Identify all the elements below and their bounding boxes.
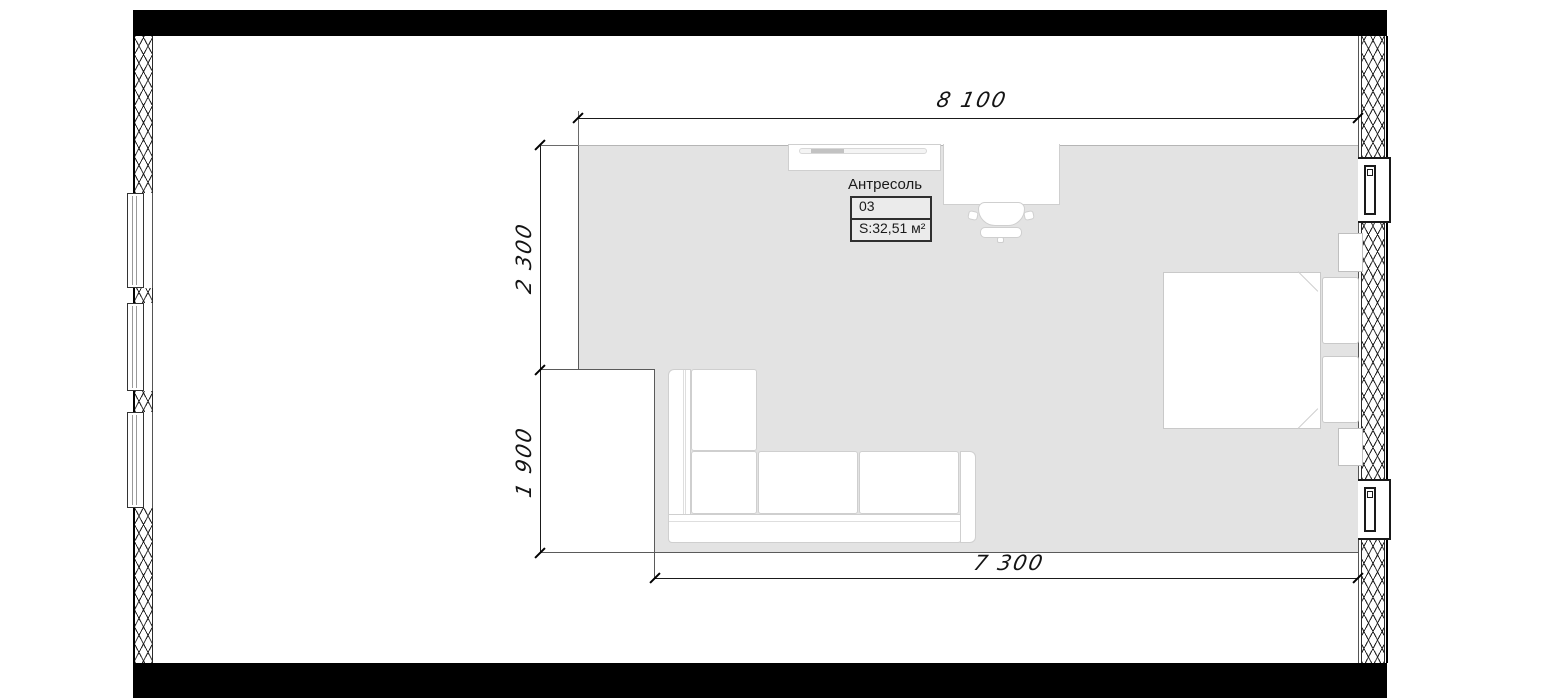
left-wall-pier (133, 391, 153, 412)
dimension-extension (540, 145, 578, 146)
room-number-cell: 03 (852, 198, 930, 220)
sofa-front-band (668, 514, 962, 543)
sofa-seat-cushion (758, 451, 858, 514)
dimension-text-top: 8 100 (869, 88, 1074, 112)
window-right-2 (1354, 479, 1391, 540)
wardrobe (788, 144, 941, 171)
room-name-label: Антресоль (848, 176, 922, 193)
left-wall-pier (133, 288, 153, 303)
left-wall-segment (133, 36, 153, 193)
nightstand (1338, 428, 1363, 466)
floor-opening-edge-extension (654, 553, 655, 578)
office-chair-stem (997, 237, 1004, 243)
sofa-armrest-right (960, 451, 976, 543)
dimension-text-left-upper: 2 300 (512, 155, 536, 360)
window-left-2 (127, 303, 144, 391)
sofa-seat-cushion (691, 451, 757, 514)
right-wall-segment (1361, 223, 1385, 479)
left-wall-segment (133, 508, 153, 663)
window-sash (1364, 165, 1376, 215)
sofa-seat-cushion (859, 451, 959, 514)
bottom-bearing-wall (133, 663, 1387, 698)
dimension-text-bottom: 7 300 (906, 551, 1111, 575)
right-wall-inner-face (1358, 36, 1359, 663)
window-glazing (132, 415, 137, 505)
window-glazing (132, 196, 137, 285)
window-left-3 (127, 412, 144, 508)
office-chair-seat (978, 202, 1025, 226)
window-sash (1364, 487, 1376, 532)
room-area-cell: S:32,51 м² (852, 220, 930, 240)
dimension-line-left (540, 145, 541, 553)
window-left-1 (127, 193, 144, 288)
dimension-text-left-lower: 1 900 (512, 359, 536, 564)
office-chair-armrest-left (967, 210, 979, 221)
room-tag-table: 03 S:32,51 м² (850, 196, 932, 242)
floor-plan-canvas: 8 100 2 300 1 900 7 300 Антресоль 03 S:3… (0, 0, 1557, 700)
desk (943, 144, 1060, 205)
wardrobe-hangers (811, 149, 844, 153)
bed-blanket (1163, 272, 1321, 429)
nightstand (1338, 233, 1363, 272)
right-wall-outer-face (1386, 36, 1388, 663)
floor-opening (540, 369, 655, 553)
sofa-front-line (669, 521, 961, 522)
dimension-line-top (578, 118, 1358, 119)
window-right-1 (1354, 157, 1391, 223)
pillow (1322, 277, 1359, 344)
pillow (1322, 356, 1359, 423)
dimension-line-bottom (655, 578, 1358, 579)
window-glazing (132, 306, 137, 388)
top-bearing-wall (133, 10, 1387, 36)
sofa-chaise-cushion (691, 369, 757, 451)
right-wall-segment (1361, 540, 1385, 663)
right-wall-segment (1361, 36, 1385, 157)
